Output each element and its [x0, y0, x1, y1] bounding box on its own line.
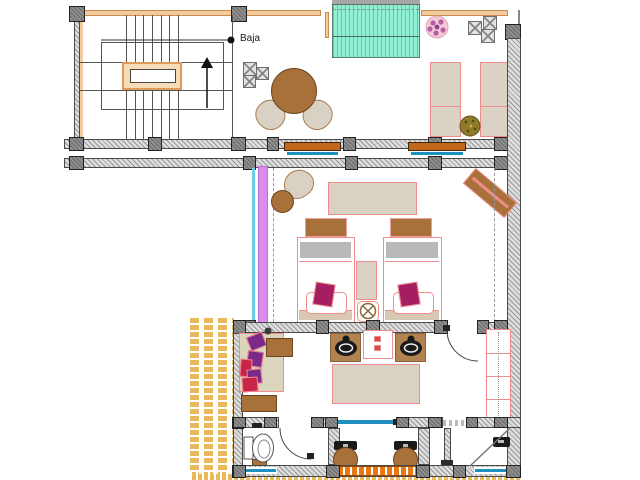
shower-screen-diagonal — [470, 429, 509, 466]
door-leaf-mark — [307, 453, 314, 459]
door-leaf-mark — [443, 325, 450, 331]
floor-plan: Baja — [0, 0, 640, 480]
plan-symbol-overlay — [0, 0, 640, 480]
ceiling-light-symbol — [361, 304, 376, 319]
vanity-sink — [335, 336, 357, 357]
door-arc-toilet — [280, 428, 311, 459]
small-plant — [265, 328, 272, 335]
round-table — [271, 68, 317, 114]
door-arc-bedroom — [447, 330, 478, 361]
baja-dot — [228, 37, 235, 44]
toilet — [244, 434, 274, 462]
vanity-sink — [400, 336, 422, 357]
stair-arrow-head — [201, 57, 213, 68]
